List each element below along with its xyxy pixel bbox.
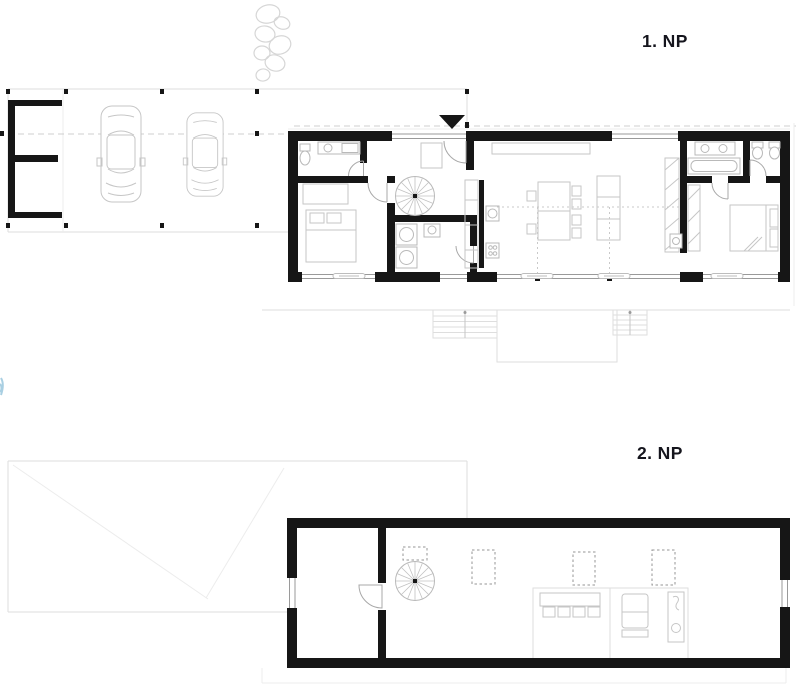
sliding-door-handle-icon [598, 274, 630, 279]
exterior-stairs [433, 310, 497, 338]
bathroom-fixtures [300, 142, 360, 165]
chair [558, 607, 570, 617]
stair-opening [403, 547, 427, 560]
kitchen-island [597, 176, 620, 240]
chair [588, 607, 600, 617]
door-leaf [359, 585, 382, 608]
entry-cabinet [421, 143, 442, 168]
blue-tree-mark [0, 378, 3, 395]
entrance-marker-icon [439, 115, 465, 129]
chair [573, 607, 585, 617]
spiral-staircase-icon [396, 562, 435, 601]
car-icon [183, 113, 226, 196]
desk [540, 593, 600, 606]
ground-line-2np [262, 668, 786, 683]
sliding-door-handle-icon [711, 274, 743, 279]
sliding-door-handle-icon [521, 274, 553, 279]
house-2np [287, 518, 790, 668]
floor-2-label: 2. NP [637, 443, 683, 464]
master-bathroom-fixtures [688, 142, 780, 174]
sideboard [492, 143, 590, 154]
vegetation-stones [254, 2, 294, 82]
small-bath-fixtures [396, 224, 440, 268]
axis-dotted-lines [497, 207, 681, 273]
floor-plan-drawing [0, 0, 800, 692]
bedroom-furniture [303, 184, 356, 262]
chaise [622, 594, 648, 628]
floor-plan-sheet: 1. NP 2. NP [0, 0, 800, 692]
spiral-staircase-icon [396, 177, 435, 216]
sanitary-unit [668, 592, 684, 642]
dining-table [527, 182, 581, 240]
chair [543, 607, 555, 617]
master-bedroom [730, 205, 778, 251]
patio [497, 310, 617, 362]
skylight-openings [472, 550, 675, 585]
storage-room [8, 100, 62, 218]
floor-1-label: 1. NP [642, 31, 688, 52]
study-furniture [533, 588, 688, 658]
exterior-walls-2np [287, 518, 790, 668]
windows-2np [290, 578, 788, 608]
exterior-stairs [613, 310, 647, 335]
house-1np [288, 115, 790, 282]
car-icon [97, 106, 145, 202]
sliding-door-handle-icon [333, 274, 365, 279]
